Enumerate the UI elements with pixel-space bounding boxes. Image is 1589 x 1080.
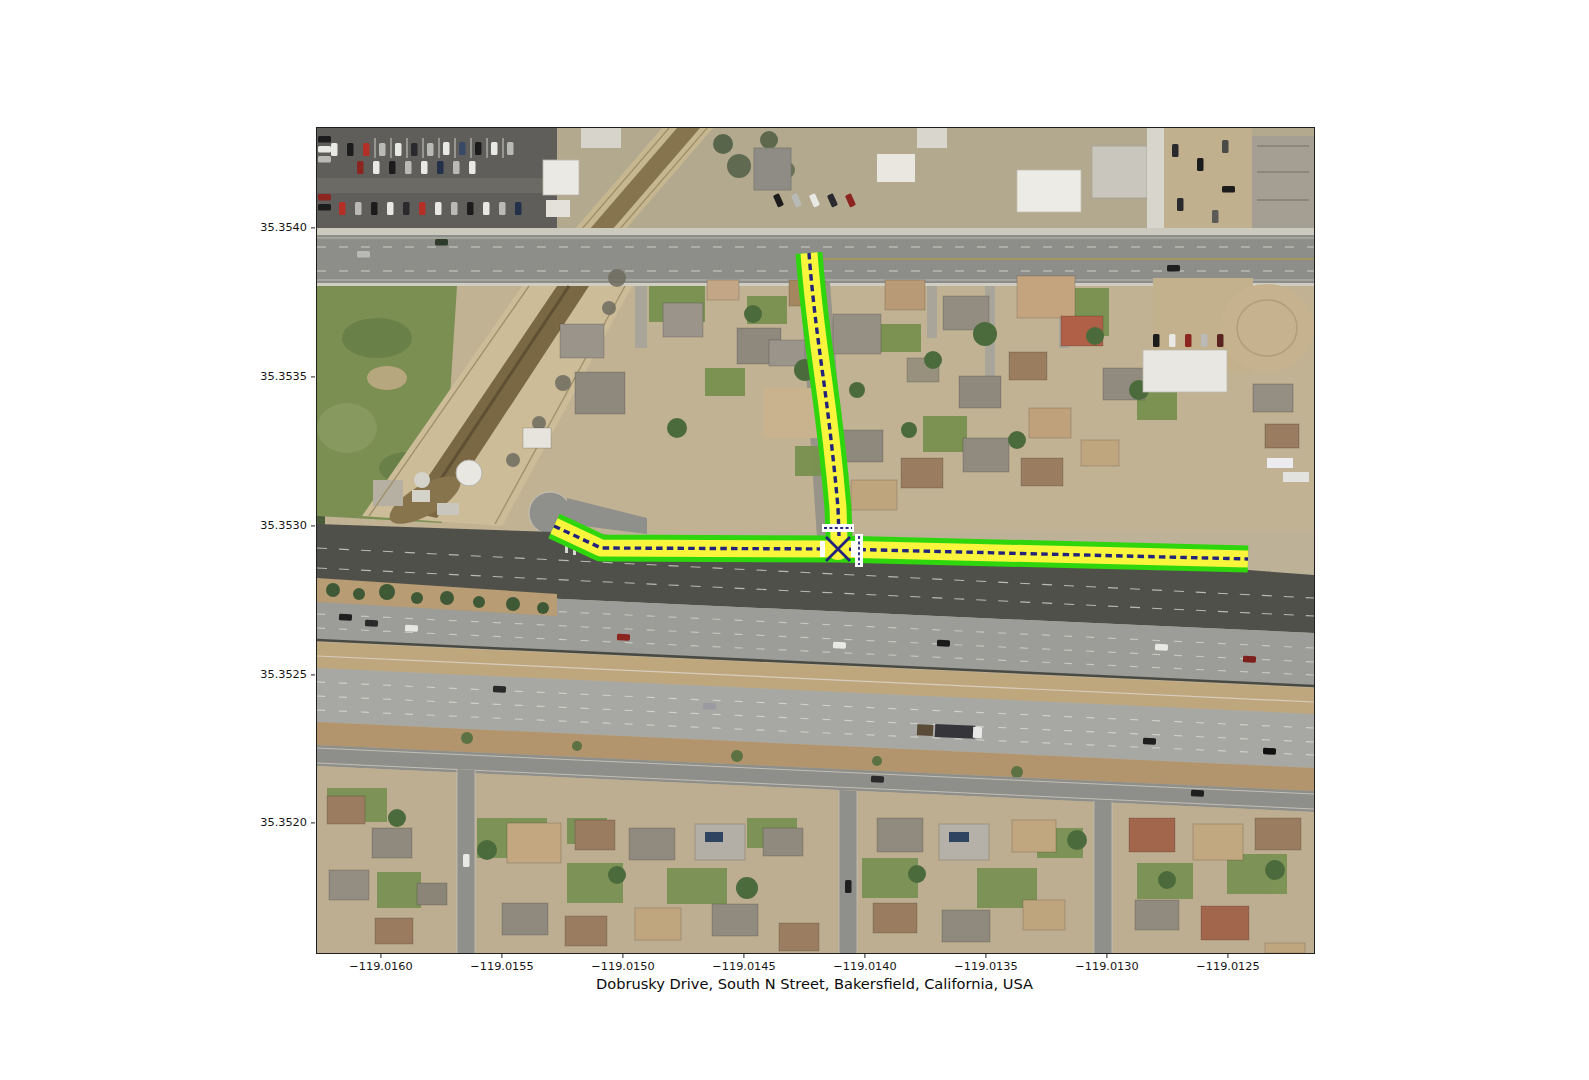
x-axis-tick-label: −119.0155 [470,960,533,973]
figure-title: Dobrusky Drive, South N Street, Bakersfi… [316,975,1313,992]
y-axis-tick-label: 35.3530 [260,519,307,532]
x-axis-tick-label: −119.0140 [833,960,896,973]
y-axis-tick-label: 35.3525 [260,668,307,681]
x-axis-tick-label: −119.0130 [1075,960,1138,973]
y-axis-tick-mark [311,227,316,228]
map-plot-area [316,127,1315,954]
x-axis-tick-label: −119.0150 [591,960,654,973]
north-commercial-block [317,128,1314,232]
y-axis-tick-label: 35.3520 [260,816,307,829]
x-axis-tick-label: −119.0135 [954,960,1017,973]
y-axis-tick-label: 35.3535 [260,370,307,383]
x-axis-tick-label: −119.0160 [349,960,412,973]
y-axis-tick-mark [311,674,316,675]
figure-canvas: 35.354035.353535.353035.352535.3520 −119… [0,0,1589,1080]
x-axis-tick-label: −119.0125 [1196,960,1259,973]
y-axis-tick-mark [311,822,316,823]
x-axis-tick-label: −119.0145 [712,960,775,973]
y-axis-tick-label: 35.3540 [260,221,307,234]
y-axis-tick-mark [311,525,316,526]
y-axis-tick-mark [311,376,316,377]
aerial-basemap [317,128,1314,953]
